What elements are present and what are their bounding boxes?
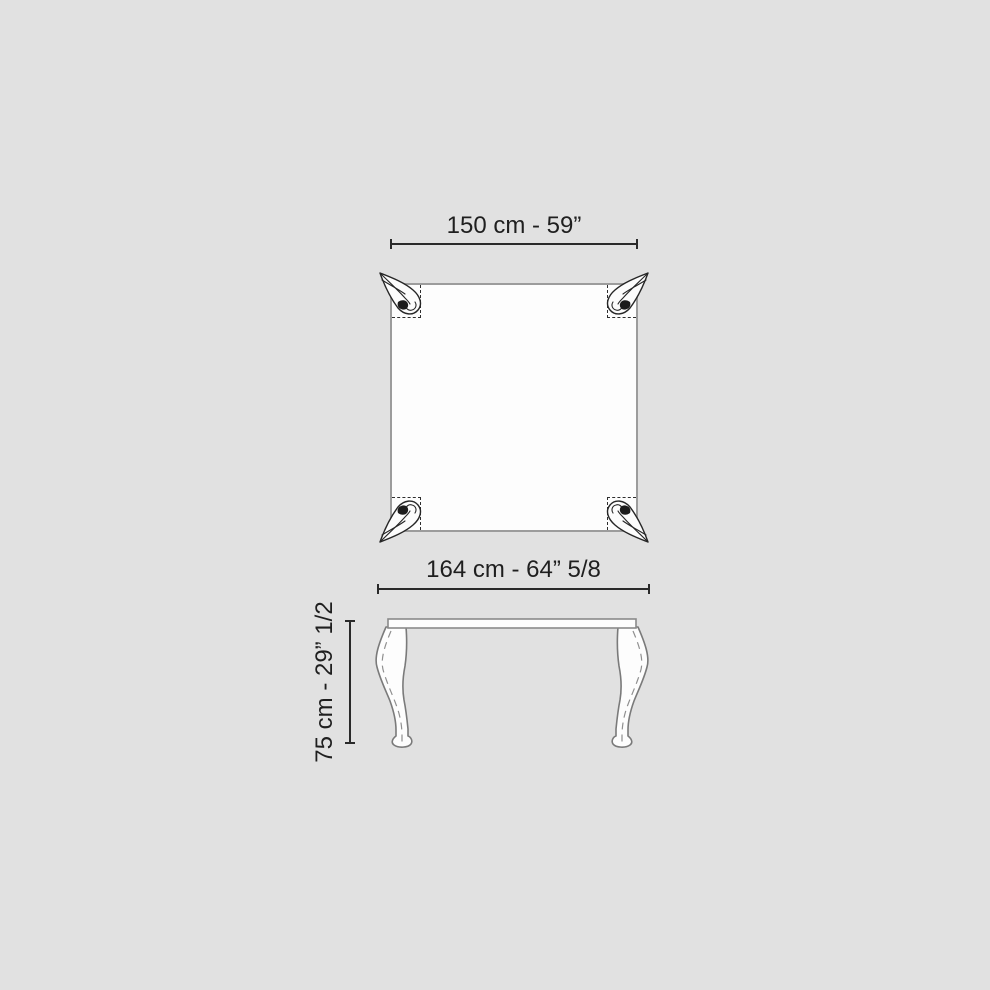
table-top-view — [390, 283, 638, 532]
dimension-line-height — [349, 620, 351, 744]
cabriole-leg-right-icon — [612, 627, 648, 747]
dimension-tick — [648, 584, 650, 594]
dimension-label-height: 75 cm - 29” 1/2 — [311, 522, 341, 842]
carved-leaf-leg-top-left-icon — [377, 270, 433, 326]
table-front-view — [330, 610, 670, 760]
dimension-tick — [345, 620, 355, 622]
carved-leaf-leg-bottom-right-icon — [595, 489, 651, 545]
carved-leaf-leg-bottom-left-icon — [377, 489, 433, 545]
dimension-line-top-width — [390, 243, 638, 245]
tabletop-slab — [388, 619, 636, 628]
dimension-tick — [636, 239, 638, 249]
dimension-line-overall-width — [377, 588, 650, 590]
dimension-tick — [345, 742, 355, 744]
dimension-tick — [390, 239, 392, 249]
dimension-label-overall-width: 164 cm - 64” 5/8 — [377, 556, 650, 584]
dimension-label-top-width: 150 cm - 59” — [390, 212, 638, 240]
dimension-tick — [377, 584, 379, 594]
carved-leaf-leg-top-right-icon — [595, 270, 651, 326]
cabriole-leg-left-icon — [376, 627, 412, 747]
drawing-canvas: 150 cm - 59” 164 cm - 64” 5/8 — [0, 0, 990, 990]
